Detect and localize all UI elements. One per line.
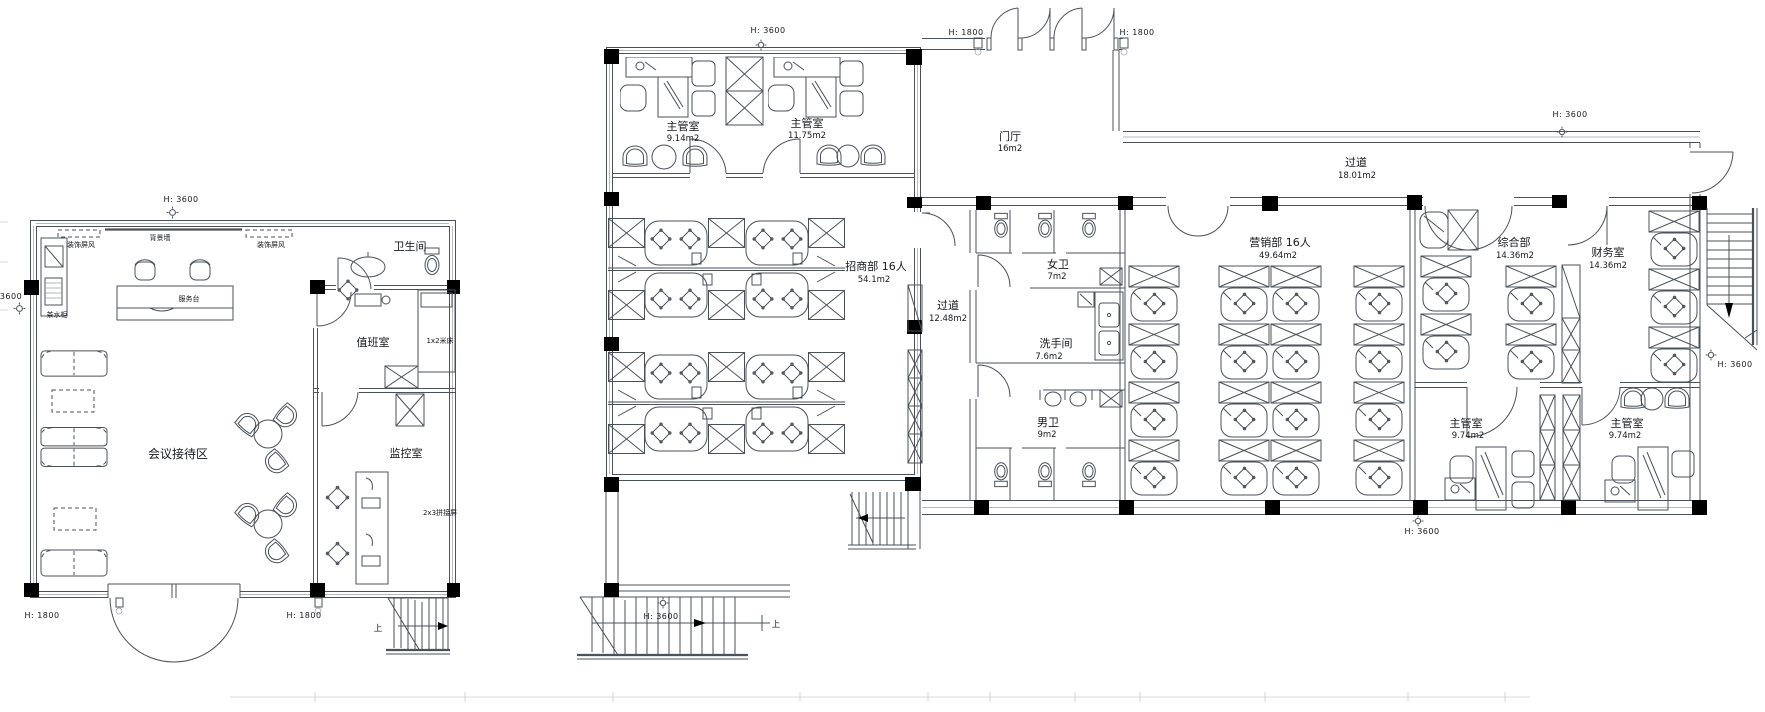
door-arc [991, 8, 1114, 38]
middle-building [577, 48, 955, 660]
room-label-corridor-west: 过道 [937, 298, 959, 312]
stairs-up-label: 上 [772, 620, 781, 630]
room-label-duty: 值班室 [357, 335, 390, 349]
door-arc [1568, 206, 1607, 245]
room-label-wc-women: 女卫 [1047, 257, 1069, 271]
executive-desk [620, 57, 715, 117]
window-wall [34, 224, 453, 595]
column [24, 280, 460, 597]
room-label-monitor: 监控室 [390, 446, 423, 460]
door-arc [110, 598, 238, 662]
room-area: 9.74m2 [1452, 431, 1485, 441]
door-arc [690, 139, 726, 173]
room-label-chief2: 主管室 [791, 116, 824, 130]
room-area: 18.01m2 [1338, 171, 1376, 181]
wall [612, 174, 914, 178]
room-label-chief-se: 主管室 [1611, 416, 1644, 430]
room-label-foyer: 门厅 [999, 129, 1021, 143]
labels: H: 3600 3600 背景墙 装饰屏风 装饰屏风 服务台 茶水柜 卫生间 值… [0, 26, 1753, 634]
annotation-screen: 装饰屏风 [257, 240, 285, 249]
door-post [116, 598, 123, 607]
room-label-business: 招商部 16人 [845, 259, 907, 273]
stairs [386, 598, 450, 654]
room-label-general: 综合部 [1498, 235, 1531, 249]
door-arc [922, 213, 955, 246]
door-arc [1168, 206, 1228, 236]
room-area: 16m2 [998, 144, 1023, 154]
room-label-corridor-top: 过道 [1345, 155, 1367, 169]
room-label-chief-sw: 主管室 [1450, 416, 1483, 430]
annotation-splice-screen: 2x3拼接屏 [423, 508, 457, 517]
wall [313, 283, 455, 584]
height-label: H: 3600 [1552, 110, 1587, 119]
annotation-bg-wall: 背景墙 [150, 233, 171, 242]
wardrobe [726, 57, 763, 125]
dim-label: 3600 [0, 292, 22, 301]
room-area: 9.14m2 [667, 134, 700, 144]
wall [31, 221, 456, 598]
wall [1415, 383, 1700, 388]
workstation-strip [1129, 266, 1404, 495]
room-area: 49.64m2 [1259, 251, 1297, 261]
room-area: 12.48m2 [929, 314, 967, 324]
room-area: 7m2 [1047, 272, 1066, 282]
door-post [315, 598, 322, 607]
round-table [234, 492, 301, 567]
decor-screen [58, 230, 100, 237]
room-area: 9m2 [1037, 430, 1056, 440]
annotation-screen: 装饰屏风 [67, 240, 95, 249]
executive-desk [768, 57, 863, 117]
door-arc [978, 255, 1010, 287]
stairs [1707, 208, 1757, 350]
door-arc [322, 392, 358, 426]
room-label-reception: 会议接待区 [148, 446, 208, 461]
left-building [24, 221, 460, 663]
door-arc [978, 365, 1010, 397]
duty-room-furniture [338, 280, 455, 388]
room-label-washroom: 洗手间 [1040, 336, 1073, 350]
workstation-strip [1649, 211, 1699, 382]
height-label: H: 3600 [643, 612, 678, 621]
monitor-room-furniture [326, 394, 424, 584]
room-label-finance: 财务室 [1592, 245, 1625, 259]
height-label: H: 1800 [1119, 28, 1154, 37]
sofa-group [41, 351, 107, 576]
annotation-tea-cabinet: 茶水柜 [47, 310, 68, 319]
height-label: H: 1800 [286, 611, 321, 620]
room-area: 7.6m2 [1035, 352, 1062, 362]
height-label: H: 1800 [948, 28, 983, 37]
door-arc [763, 139, 800, 173]
height-label: H: 3600 [163, 195, 198, 204]
room-area: 14.36m2 [1589, 261, 1627, 271]
workstation-cluster [608, 219, 845, 320]
executive-desk [1605, 388, 1694, 510]
round-table [234, 402, 301, 477]
room-label-wc-men: 男卫 [1037, 416, 1059, 429]
height-label: H: 1800 [24, 611, 59, 620]
room-area: 11.75m2 [788, 131, 826, 141]
workstation-strip [1420, 210, 1556, 379]
decor-screen [246, 230, 292, 237]
floor-plan-page: H: 3600 3600 背景墙 装饰屏风 装饰屏风 服务台 茶水柜 卫生间 值… [0, 0, 1765, 712]
room-label-marketing: 营销部 16人 [1249, 235, 1311, 249]
annotation-service-desk: 服务台 [179, 294, 200, 303]
lamp-icon [14, 40, 1717, 609]
stairs [577, 597, 770, 659]
room-area: 9.74m2 [1609, 431, 1642, 441]
floor-plan-canvas: H: 3600 3600 背景墙 装饰屏风 装饰屏风 服务台 茶水柜 卫生间 值… [0, 0, 1765, 712]
stairs-up-label: 上 [374, 624, 383, 634]
column [604, 49, 922, 597]
height-label: H: 3600 [750, 26, 785, 35]
tea-cabinet [41, 238, 67, 316]
stairs [850, 492, 905, 545]
room-area: 54.1m2 [858, 275, 891, 285]
wall [1113, 50, 1119, 131]
workstation-cluster [608, 353, 845, 454]
room-label-chief1: 主管室 [667, 119, 700, 133]
service-desk [117, 260, 233, 320]
height-label: H: 3600 [1404, 527, 1439, 536]
room-label-toilet: 卫生间 [394, 239, 427, 253]
annotation-bed: 1x2米床 [426, 336, 453, 345]
room-area: 14.36m2 [1496, 251, 1534, 261]
height-label: H: 3600 [1717, 360, 1752, 369]
lounge-chairs [623, 145, 885, 169]
